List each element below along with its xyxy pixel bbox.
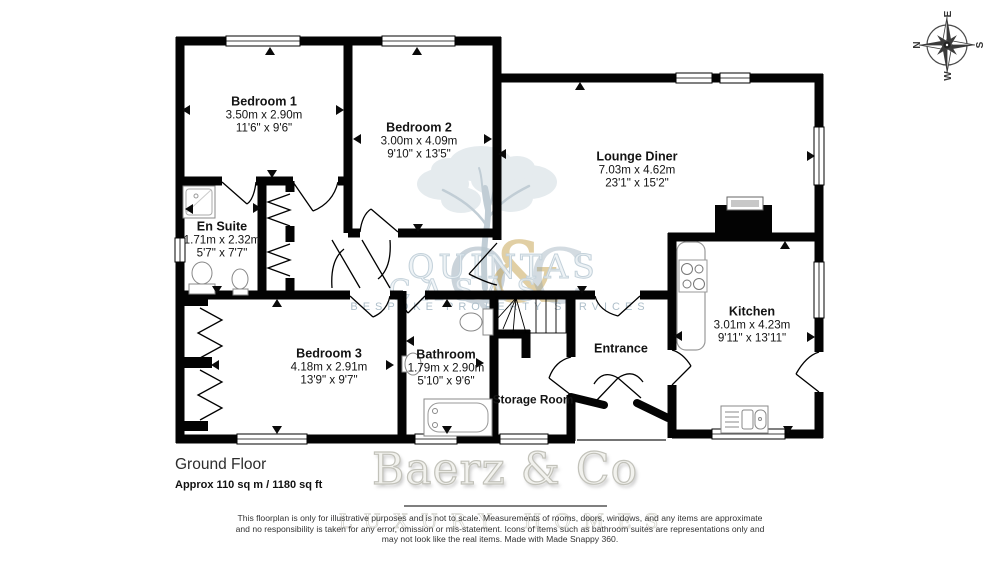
compass-rose: N E S W <box>912 10 986 80</box>
staircase <box>496 297 566 333</box>
door-bedroom3 <box>350 296 390 317</box>
compass-w: W <box>943 71 954 81</box>
basin-icon <box>232 269 248 295</box>
door-ensuite <box>222 182 256 204</box>
toilet-icon <box>189 262 215 294</box>
ensuite-fixtures <box>183 186 248 295</box>
compass-n: N <box>912 41 923 48</box>
wardrobe-icon <box>268 244 290 276</box>
compass-e: E <box>943 10 954 17</box>
wall-segments <box>176 37 823 443</box>
door-kitchen-east <box>796 352 819 392</box>
bathtub-icon <box>424 399 492 436</box>
door-bedroom1 <box>293 182 338 211</box>
door-entry-right <box>618 374 643 398</box>
tree-watermark <box>417 146 557 288</box>
shower-icon <box>183 186 215 218</box>
floorplan-drawing: N E S W <box>0 0 1000 562</box>
porch-jambs <box>571 397 668 418</box>
floorplan-page: Q & C QUINTAS CASAS BESPOKE PROPERTY SER… <box>0 0 1000 562</box>
door-hall-double-a <box>332 240 360 288</box>
wardrobe-icon <box>268 194 290 226</box>
toilet-icon <box>460 309 493 335</box>
door-lounge-entrance <box>595 296 640 316</box>
basin-icon <box>402 353 421 375</box>
door-bedroom2 <box>360 209 398 232</box>
door-kitchen-west <box>672 350 691 385</box>
wardrobe-icon <box>198 370 222 420</box>
fireplace <box>715 197 772 237</box>
bathroom-fixtures <box>402 309 493 436</box>
door-storage <box>549 357 571 395</box>
kitchen-sink-icon <box>721 406 768 433</box>
door-hall-double-b <box>362 240 390 288</box>
wardrobe-icons <box>184 194 290 431</box>
compass-s: S <box>975 41 986 48</box>
wardrobe-icon <box>198 308 222 358</box>
kitchen-fixtures <box>677 242 768 433</box>
door-entry-left <box>594 375 618 400</box>
hob-icon <box>679 260 707 292</box>
walls <box>176 37 823 443</box>
